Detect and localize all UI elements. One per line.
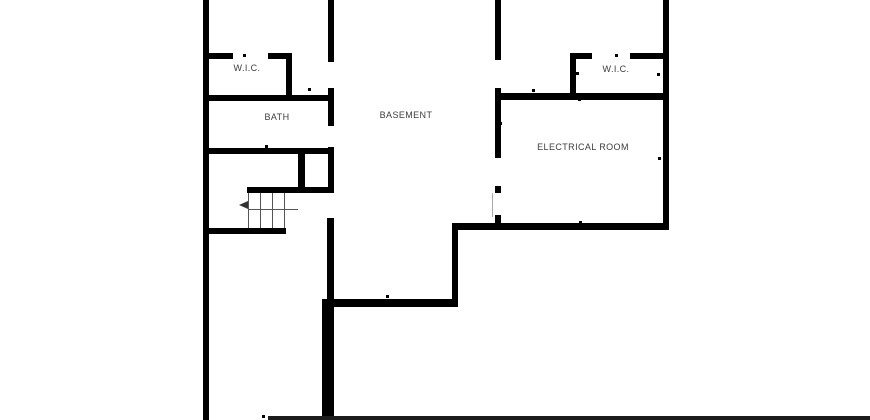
wall-segment: [495, 215, 501, 230]
wall-segment: [570, 53, 576, 97]
wall-tick: [578, 98, 581, 101]
room-label-wic-right: W.I.C.: [603, 64, 630, 74]
wall-tick: [615, 54, 618, 57]
stair-tread: [248, 193, 249, 228]
wall-tick: [265, 145, 268, 148]
wall-segment: [203, 0, 209, 420]
basement-floor-plan: W.I.C. BATH BASEMENT W.I.C. ELECTRICAL R…: [0, 0, 870, 420]
wall-segment: [327, 218, 334, 300]
wall-segment: [328, 88, 334, 126]
wall-tick: [204, 73, 207, 76]
room-label-electrical-room: ELECTRICAL ROOM: [537, 142, 629, 152]
wall-tick: [243, 54, 246, 57]
stair-run-line: [248, 209, 298, 210]
wall-tick: [386, 295, 389, 298]
wall-segment: [322, 299, 334, 420]
room-label-wic-left: W.I.C.: [234, 63, 261, 73]
wall-tick: [204, 109, 207, 112]
wall-segment: [495, 0, 501, 60]
wall-segment: [268, 416, 870, 420]
wall-segment: [328, 0, 334, 62]
room-label-basement: BASEMENT: [380, 110, 433, 120]
stair-tread: [284, 193, 285, 228]
wall-tick: [658, 157, 661, 160]
wall-segment: [452, 223, 458, 307]
wall-tick: [265, 95, 268, 98]
wall-segment: [495, 186, 501, 193]
room-label-bath: BATH: [265, 112, 290, 122]
wall-tick: [308, 88, 311, 91]
wall-segment: [495, 93, 668, 100]
stair-direction-arrow: [239, 201, 248, 209]
wall-tick: [579, 221, 582, 224]
wall-segment: [630, 53, 668, 59]
floor-plan-screenshot: W.I.C. BATH BASEMENT W.I.C. ELECTRICAL R…: [0, 0, 870, 420]
wall-segment: [203, 148, 334, 154]
wall-tick: [657, 73, 660, 76]
wall-segment: [322, 299, 458, 307]
wall-segment: [663, 0, 669, 230]
wall-segment: [452, 223, 668, 230]
wall-segment: [203, 228, 286, 234]
wall-tick: [532, 89, 535, 92]
wall-tick: [204, 204, 207, 207]
wall-tick: [499, 122, 502, 125]
wall-tick: [262, 415, 265, 418]
door-leaf-line: [492, 193, 493, 217]
stair-tread: [272, 193, 273, 228]
stair-tread: [260, 193, 261, 228]
wall-segment: [203, 95, 334, 101]
wall-segment: [203, 53, 233, 59]
wall-tick: [576, 72, 579, 75]
wall-segment: [286, 53, 292, 101]
